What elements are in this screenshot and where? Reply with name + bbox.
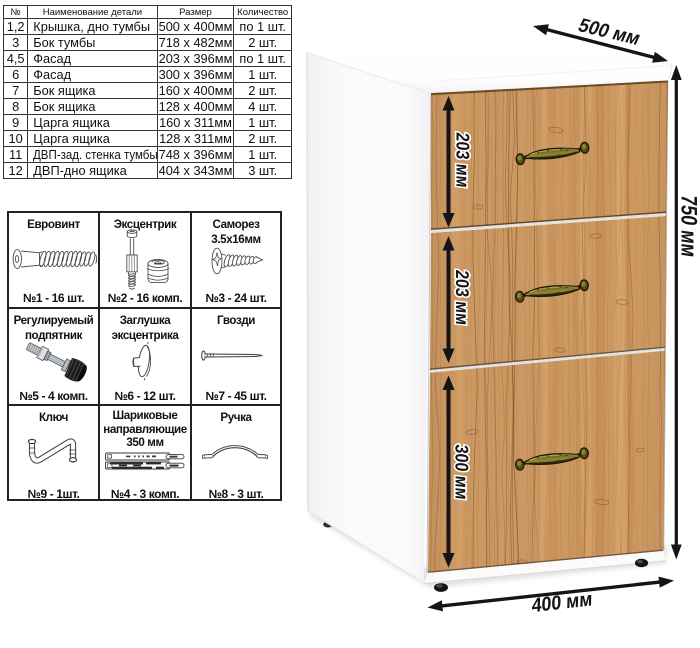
svg-text:203 мм: 203 мм <box>452 269 473 326</box>
svg-text:300 мм: 300 мм <box>452 444 473 501</box>
svg-text:400 мм: 400 мм <box>531 588 592 617</box>
svg-text:203 мм: 203 мм <box>453 132 474 189</box>
svg-text:750 мм: 750 мм <box>677 193 700 258</box>
